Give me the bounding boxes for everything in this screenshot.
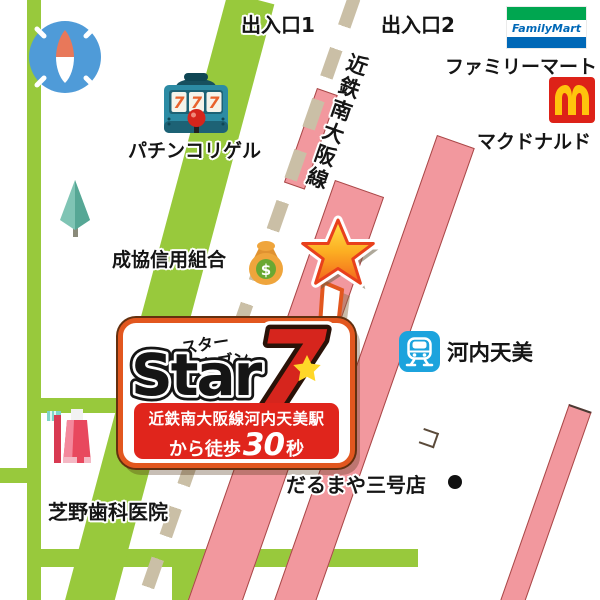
pachinko-label: パチンコリゲル	[128, 136, 261, 163]
svg-text:7: 7	[173, 93, 185, 112]
tree-icon	[60, 180, 90, 238]
money-bag-icon: $	[243, 236, 289, 288]
familymart-logo-text: FamilyMart	[512, 22, 581, 35]
walk-prefix: から徒歩	[169, 435, 241, 459]
star-marker-icon	[296, 214, 380, 298]
svg-text:7: 7	[208, 93, 220, 112]
store-location-dot	[448, 475, 462, 489]
exit1-label: 出入口1	[241, 9, 315, 38]
platform-entrance-notch	[419, 428, 439, 448]
dental-clinic-label: 芝野歯科医院	[48, 496, 168, 525]
mcdonalds-label: マクドナルド	[477, 127, 591, 154]
exit2-label: 出入口2	[381, 9, 455, 38]
train-icon	[399, 331, 440, 372]
station-area-map: 7 7 7 パチンコリゲル 成協信用組合 $ 出入口1 出入口2 FamilyM…	[0, 0, 600, 600]
walk-number: 30	[243, 427, 284, 459]
familymart-label: ファミリーマート	[445, 52, 597, 79]
golden-arches-icon	[549, 77, 595, 123]
station-label: 河内天美	[447, 336, 533, 367]
platform-east-step	[496, 404, 591, 600]
mcdonalds-logo	[549, 77, 595, 123]
svg-text:$: $	[261, 261, 271, 279]
toothbrush-toothpaste-icon	[45, 405, 93, 469]
walk-time-banner: 近鉄南大阪線河内天美駅 から徒歩 30 秒	[134, 403, 339, 459]
compass-icon	[25, 17, 105, 97]
station-sign	[399, 331, 440, 372]
banner-line1: 近鉄南大阪線河内天美駅	[134, 407, 339, 429]
walk-suffix: 秒	[286, 435, 304, 459]
slot-machine-icon: 7 7 7	[158, 71, 236, 137]
road-stub-left	[0, 468, 29, 483]
bank-label: 成協信用組合	[112, 245, 226, 272]
star7-callout: スター セブン 7 7 7 Star Star Star 近鉄南大阪線河内天美駅…	[118, 318, 355, 468]
svg-text:Star: Star	[131, 341, 263, 409]
darumaya-label: だるまや三号店	[286, 469, 426, 498]
banner-line2: から徒歩 30 秒	[134, 427, 339, 459]
familymart-logo: FamilyMart	[507, 7, 586, 48]
